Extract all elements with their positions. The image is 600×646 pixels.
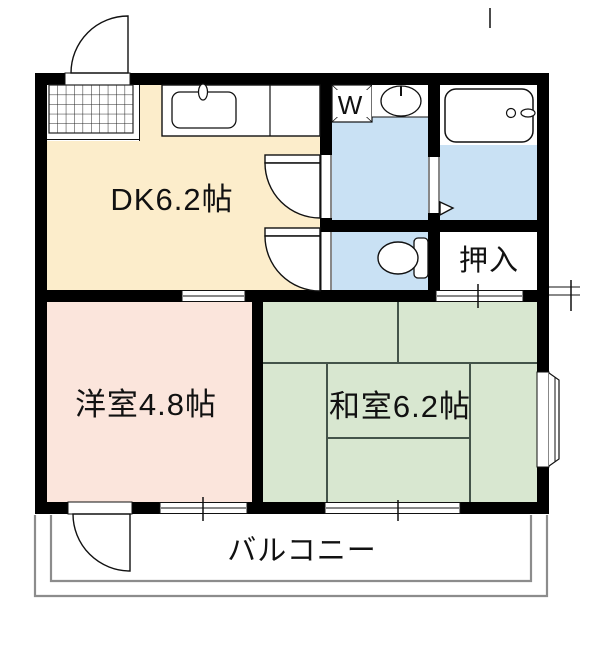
washing-machine-icon: W — [332, 85, 372, 122]
sliding-door-dk-western-icon — [182, 291, 245, 302]
laundry-label: W — [338, 90, 363, 120]
wall-washroom-toilet — [320, 220, 549, 232]
floor-plan-page: W DK6.2帖 洋室4.8帖 和室6.2帖 押入 バルコニー — [0, 0, 600, 646]
gap-toilet — [320, 232, 332, 290]
room-western-label: 洋室4.8帖 — [75, 387, 217, 422]
room-bath-floor — [440, 145, 537, 220]
balcony-door-icon — [68, 502, 132, 571]
bathtub-icon — [445, 89, 535, 142]
window-japanese-icon — [325, 500, 460, 521]
room-closet-label: 押入 — [459, 244, 519, 277]
gap-bath — [428, 157, 440, 213]
room-japanese-label: 和室6.2帖 — [329, 389, 471, 424]
kitchen-sink-icon — [162, 84, 320, 136]
entrance-door-icon — [71, 16, 128, 73]
balcony-label: バルコニー — [227, 535, 376, 567]
bay-window-icon — [537, 372, 559, 467]
room-dk-label: DK6.2帖 — [110, 182, 233, 217]
wall-western-japanese — [252, 290, 263, 514]
entrance-opening — [65, 73, 130, 85]
gap-washroom — [320, 155, 332, 218]
entrance-tile-icon — [47, 85, 140, 141]
floor-plan: W DK6.2帖 洋室4.8帖 和室6.2帖 押入 バルコニー — [0, 0, 600, 646]
washbasin-icon — [372, 85, 428, 117]
wall-left — [35, 73, 47, 514]
